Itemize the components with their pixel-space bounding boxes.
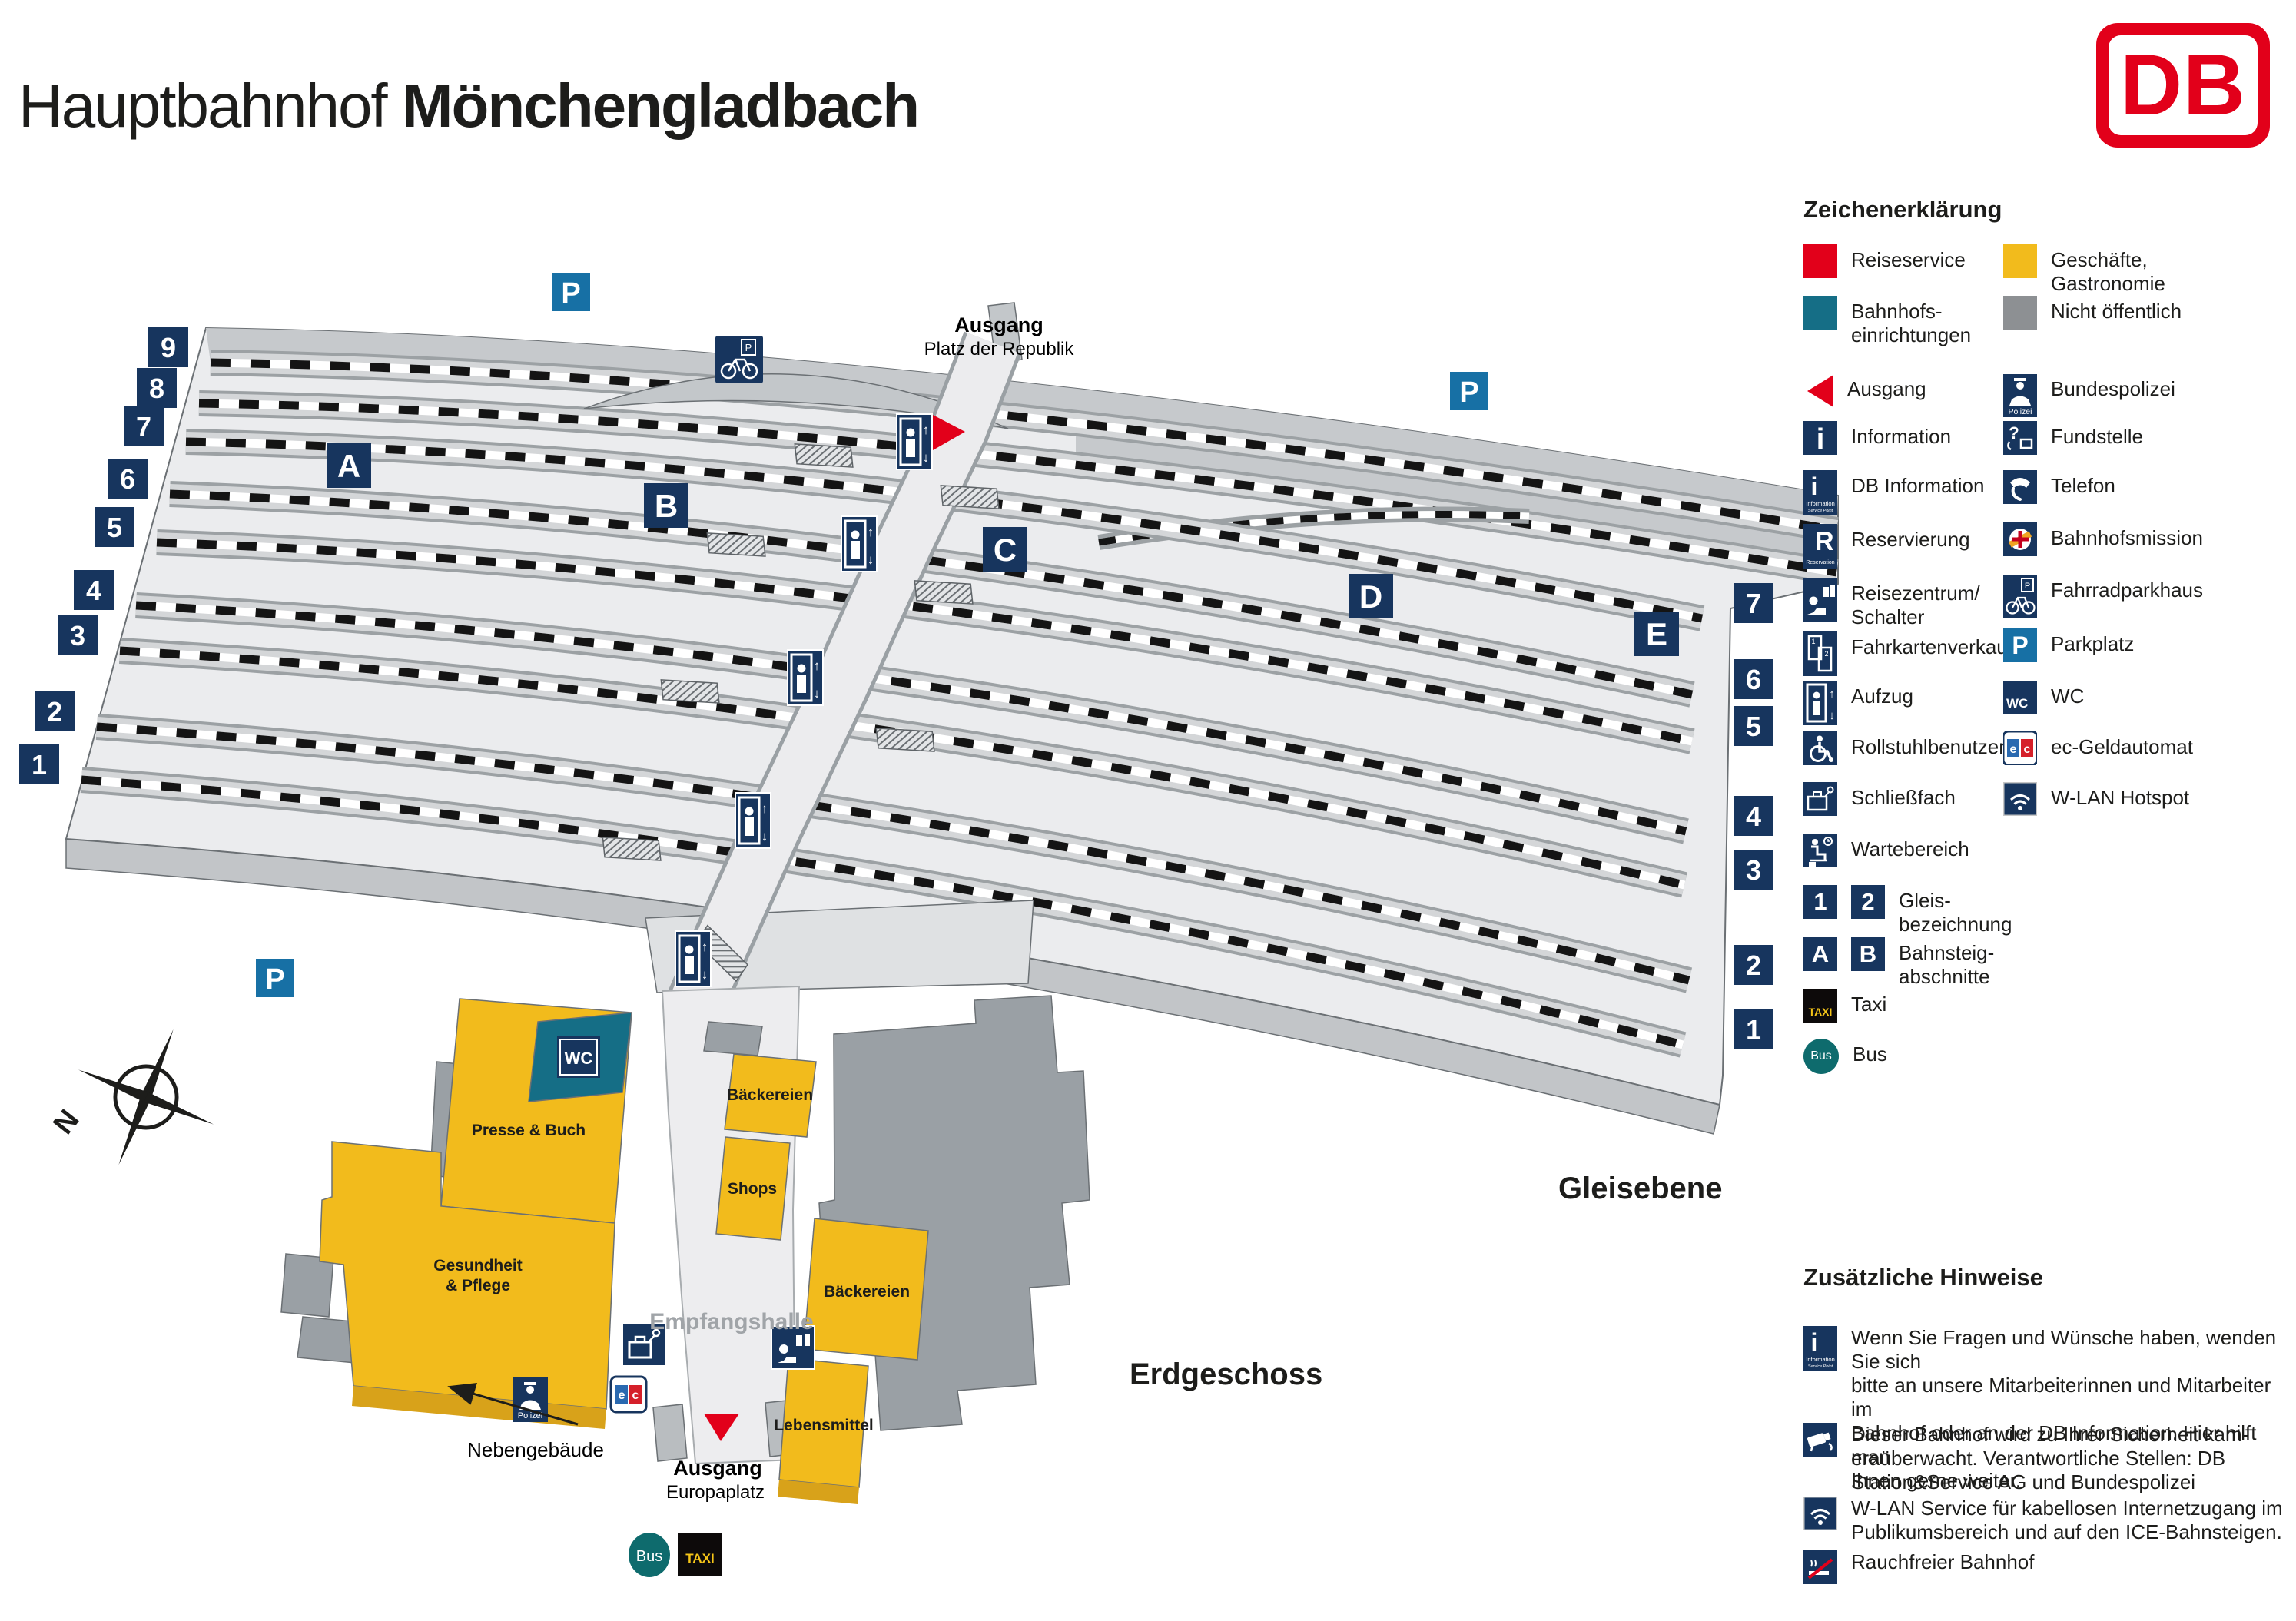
- legend-label: DB Information: [1851, 474, 1984, 498]
- note-text: Rauchfreier Bahnhof: [1851, 1550, 2034, 1574]
- nicht-oeffentlich-swatch: [2003, 296, 2037, 330]
- legend-label: Nicht öffentlich: [2051, 300, 2182, 323]
- legend-item-wlan-hotspot: W-LAN Hotspot: [2003, 782, 2189, 816]
- legend-item-wartebereich: Wartebereich: [1803, 834, 1969, 867]
- svg-text:5: 5: [107, 512, 122, 543]
- legend-label: Gastronomie: [2051, 272, 2165, 296]
- legend-label: Reisezentrum/: [1851, 582, 1980, 605]
- compass: N: [48, 1002, 241, 1192]
- camera-icon: [1803, 1423, 1837, 1457]
- svg-text:2: 2: [1746, 950, 1761, 981]
- exit-arrow-icon: [1807, 375, 1833, 407]
- shop-label-gesundheit-2: & Pflege: [446, 1277, 510, 1294]
- svg-text:3: 3: [1746, 854, 1761, 886]
- legend-item-bahnhofseinrichtungen: Bahnhofs-einrichtungen: [1803, 296, 1971, 347]
- gray-block-north: [704, 1022, 762, 1056]
- south-exit-block-left: [653, 1404, 687, 1461]
- waiting-area-icon: [1803, 834, 1837, 867]
- shop-label-presse: Presse & Buch: [472, 1122, 586, 1139]
- legend-label: Schalter: [1851, 605, 1980, 629]
- legend-item-taxi: TAXI Taxi: [1803, 989, 1886, 1023]
- reisezentrum-icon: [1803, 578, 1837, 622]
- legend-label: einrichtungen: [1851, 323, 1971, 347]
- no-smoking-icon: [1803, 1550, 1837, 1584]
- taxi-stand-icon: TAXI: [678, 1533, 722, 1576]
- svg-text:5: 5: [1746, 711, 1761, 742]
- bike-parking-sign: P: [715, 336, 763, 383]
- svg-text:WC: WC: [565, 1049, 593, 1068]
- legend-heading: Zeichenerklärung: [1803, 196, 2002, 224]
- legend-label: Wartebereich: [1851, 837, 1969, 861]
- elevator-icon: [675, 931, 711, 986]
- svg-text:4: 4: [86, 575, 101, 606]
- legend-item-gleisbezeichnung: 1 2 Gleis-bezeichnung: [1803, 885, 2012, 936]
- svg-text:D: D: [1359, 578, 1382, 615]
- svg-text:e: e: [2010, 743, 2017, 756]
- legend-label: bezeichnung: [1899, 913, 2012, 936]
- legend-label: WC: [2051, 685, 2084, 708]
- svg-text:2: 2: [47, 696, 62, 728]
- svg-text:9: 9: [161, 332, 176, 363]
- wifi-icon: [2003, 782, 2037, 816]
- legend-label: Bahnhofsmission: [2051, 526, 2203, 550]
- note-item-rauchfrei: Rauchfreier Bahnhof: [1803, 1550, 2034, 1584]
- parking-sign: [256, 959, 294, 997]
- shop-label-shops: Shops: [728, 1180, 777, 1198]
- note-item-wlan: W-LAN Service für kabellosen Internetzug…: [1803, 1497, 2283, 1544]
- svg-text:↓: ↓: [1829, 709, 1835, 722]
- legend-item-fundstelle: ? Fundstelle: [2003, 421, 2143, 455]
- reservierung-icon: R Reservation: [1803, 524, 1837, 569]
- legend-item-schliessfach: Schließfach: [1803, 782, 1956, 816]
- legend-label: Taxi: [1851, 993, 1886, 1016]
- svg-text:4: 4: [1746, 801, 1761, 832]
- svg-text:P: P: [2025, 582, 2030, 591]
- svg-text:P: P: [745, 342, 752, 353]
- db-information-icon: i Information Service Point: [1803, 1326, 1837, 1371]
- shop-label-baeckereien-ost: Bäckereien: [824, 1283, 910, 1301]
- wifi-icon: [1803, 1497, 1837, 1530]
- section-badge-b: B: [1851, 937, 1885, 971]
- legend-label: Fahrradparkhaus: [2051, 578, 2203, 602]
- legend-item-ausgang: Ausgang: [1807, 373, 1926, 407]
- legend-label: Fundstelle: [2051, 425, 2143, 449]
- ec-icon: e c: [2003, 731, 2037, 765]
- exit-south-sub: Europaplatz: [666, 1482, 765, 1503]
- legend-label: W-LAN Hotspot: [2051, 786, 2189, 810]
- shop-label-baeckereien-nord: Bäckereien: [727, 1086, 813, 1104]
- elevator-icon: [841, 516, 877, 572]
- legend-item-ec-geldautomat: e c ec-Geldautomat: [2003, 731, 2193, 765]
- legend-item-information: i Information: [1803, 421, 1951, 455]
- legend-item-parkplatz: P Parkplatz: [2003, 628, 2134, 662]
- legend-label: Ausgang: [1847, 377, 1926, 401]
- information-icon: i: [1803, 421, 1837, 455]
- legend-item-bahnhofsmission: Bahnhofsmission: [2003, 522, 2203, 556]
- polizei-sign: Polizei: [513, 1377, 548, 1422]
- svg-text:c: c: [2024, 743, 2031, 756]
- svg-text:6: 6: [1746, 664, 1761, 695]
- legend-item-wc: WC WC: [2003, 681, 2084, 714]
- legend-item-db-information: i Information Service Point DB Informati…: [1803, 470, 1984, 515]
- note-text: Dieser Bahnhof wird zu Ihrer Sicherheit …: [1851, 1423, 2248, 1494]
- parking-sign: [1450, 372, 1488, 410]
- svg-text:R: R: [1815, 527, 1834, 556]
- svg-text:1: 1: [32, 749, 47, 781]
- legend-label: Geschäfte,: [2051, 248, 2165, 272]
- ec-atm-sign: e c: [611, 1377, 646, 1412]
- svg-text:?: ?: [2009, 423, 2019, 443]
- legend-item-bus: Bus Bus: [1803, 1039, 1887, 1074]
- bahnhofseinrichtungen-swatch: [1803, 296, 1837, 330]
- legend-label: Fahrkartenverkauf: [1851, 635, 2013, 659]
- shop-label-lebensmittel: Lebensmittel: [774, 1417, 874, 1434]
- svg-text:e: e: [619, 1389, 625, 1402]
- phone-icon: [2003, 470, 2037, 504]
- shop-label-gesundheit-1: Gesundheit: [433, 1257, 523, 1275]
- svg-text:3: 3: [70, 620, 85, 651]
- legend-label: Bahnsteig-: [1899, 941, 1994, 965]
- svg-text:Reservation: Reservation: [1806, 560, 1834, 565]
- level-label-gleisebene: Gleisebene: [1558, 1172, 1722, 1205]
- gray-wing-1: [281, 1254, 333, 1317]
- svg-text:Bus: Bus: [636, 1548, 662, 1565]
- track-badge-1: 1: [1803, 885, 1837, 919]
- legend-item-telefon: Telefon: [2003, 470, 2115, 504]
- legend-item-rollstuhlbenutzer: Rollstuhlbenutzer: [1803, 731, 2006, 765]
- note-text: W-LAN Service für kabellosen Internetzug…: [1851, 1497, 2283, 1544]
- legend-label: Gleis-: [1899, 889, 2012, 913]
- taxi-icon: TAXI: [1803, 989, 1837, 1023]
- level-label-erdgeschoss: Erdgeschoss: [1130, 1357, 1322, 1391]
- legend-item-fahrkartenverkauf: 1 2 Fahrkartenverkauf: [1803, 631, 2013, 676]
- svg-text:1: 1: [1746, 1014, 1761, 1046]
- legend-item-bahnsteigabschnitte: A B Bahnsteig-abschnitte: [1803, 937, 1994, 989]
- legend-label: Information: [1851, 425, 1951, 449]
- legend-label: Bundespolizei: [2051, 377, 2175, 401]
- legend-item-geschaefte: Geschäfte,Gastronomie: [2003, 244, 2165, 296]
- bus-stop-icon: Bus: [629, 1533, 670, 1577]
- svg-text:i: i: [1811, 1328, 1818, 1356]
- svg-text:c: c: [632, 1389, 639, 1402]
- exit-north-label: Ausgang: [954, 313, 1043, 336]
- legend-label: Bahnhofs-: [1851, 300, 1971, 323]
- station-map-page: { "title":{"prefix":"Hauptbahnhof","city…: [0, 0, 2296, 1621]
- elevator-icon: [897, 414, 932, 469]
- fundstelle-icon: ?: [2003, 421, 2037, 455]
- geschaefte-swatch: [2003, 244, 2037, 278]
- locker-icon: [1803, 782, 1837, 816]
- legend-item-aufzug: ↑ ↓ Aufzug: [1803, 681, 1913, 725]
- legend-label: Rollstuhlbenutzer: [1851, 735, 2006, 759]
- svg-text:Information: Information: [1806, 1356, 1835, 1363]
- db-information-icon: i Information Service Point: [1803, 470, 1837, 515]
- legend-label: Reservierung: [1851, 528, 1970, 552]
- legend-label: Telefon: [2051, 474, 2115, 498]
- svg-text:1: 1: [1811, 638, 1815, 645]
- note-item-camera: Dieser Bahnhof wird zu Ihrer Sicherheit …: [1803, 1423, 2248, 1494]
- exit-south-label: Ausgang: [673, 1457, 762, 1480]
- parkplatz-icon: P: [2003, 628, 2037, 662]
- nebengebaeude-label: Nebengebäude: [467, 1438, 604, 1461]
- polizei-icon: Polizei: [2003, 373, 2037, 418]
- legend-label: abschnitte: [1899, 965, 1994, 989]
- svg-text:Service Point: Service Point: [1808, 1364, 1833, 1369]
- legend-label: Parkplatz: [2051, 632, 2134, 656]
- svg-text:C: C: [994, 532, 1017, 568]
- legend-item-reiseservice: Reiseservice: [1803, 244, 1966, 278]
- elevator-legend-icon: ↑ ↓: [1803, 681, 1837, 725]
- wc-sign: WC: [557, 1036, 600, 1078]
- elevator-icon: [735, 793, 771, 848]
- fahrkartenverkauf-icon: 1 2: [1803, 631, 1837, 676]
- reiseservice-swatch: [1803, 244, 1837, 278]
- bike-parking-icon: P: [2003, 575, 2037, 619]
- legend-label: Schließfach: [1851, 786, 1956, 810]
- svg-text:6: 6: [120, 463, 135, 495]
- svg-text:E: E: [1646, 616, 1667, 652]
- svg-text:Polizei: Polizei: [2009, 407, 2032, 416]
- legend-label: ec-Geldautomat: [2051, 735, 2193, 759]
- svg-text:B: B: [655, 488, 678, 524]
- bahnhofsmission-icon: [2003, 522, 2037, 556]
- compass-north-label: N: [48, 1104, 86, 1140]
- svg-text:TAXI: TAXI: [685, 1551, 714, 1566]
- legend-item-nicht-oeffentlich: Nicht öffentlich: [2003, 296, 2182, 330]
- exit-north-sub: Platz der Republik: [924, 339, 1075, 360]
- track-badge-2: 2: [1851, 885, 1885, 919]
- svg-text:Information: Information: [1806, 500, 1835, 507]
- svg-text:i: i: [1811, 472, 1818, 500]
- wheelchair-icon: [1803, 731, 1837, 765]
- section-badge-a: A: [1803, 937, 1837, 971]
- legend-item-bundespolizei: Polizei Bundespolizei: [2003, 373, 2175, 418]
- legend-item-fahrradparkhaus: P Fahrradparkhaus: [2003, 575, 2203, 619]
- svg-text:8: 8: [149, 373, 164, 404]
- legend-label: Bus: [1853, 1043, 1887, 1066]
- parking-sign: [552, 273, 590, 311]
- legend-item-reservierung: R Reservation Reservierung: [1803, 524, 1970, 569]
- svg-text:Service Point: Service Point: [1808, 509, 1833, 513]
- notes-heading: Zusätzliche Hinweise: [1803, 1264, 2043, 1291]
- svg-text:i: i: [1817, 423, 1825, 455]
- svg-text:↑: ↑: [1829, 688, 1835, 701]
- legend-item-reisezentrum: Reisezentrum/Schalter: [1803, 578, 1980, 629]
- wc-icon: WC: [2003, 681, 2037, 714]
- track-numbers-right: 7 6 5 4 3 2 1: [1734, 583, 1773, 1049]
- svg-text:2: 2: [1824, 650, 1828, 658]
- svg-text:7: 7: [136, 411, 151, 443]
- svg-text:A: A: [337, 448, 360, 484]
- legend-label: Aufzug: [1851, 685, 1913, 708]
- svg-text:7: 7: [1746, 588, 1761, 619]
- elevator-icon: [788, 650, 823, 705]
- legend-label: Reiseservice: [1851, 248, 1966, 272]
- hall-label: Empfangshalle: [649, 1309, 813, 1334]
- bus-icon: Bus: [1803, 1039, 1839, 1074]
